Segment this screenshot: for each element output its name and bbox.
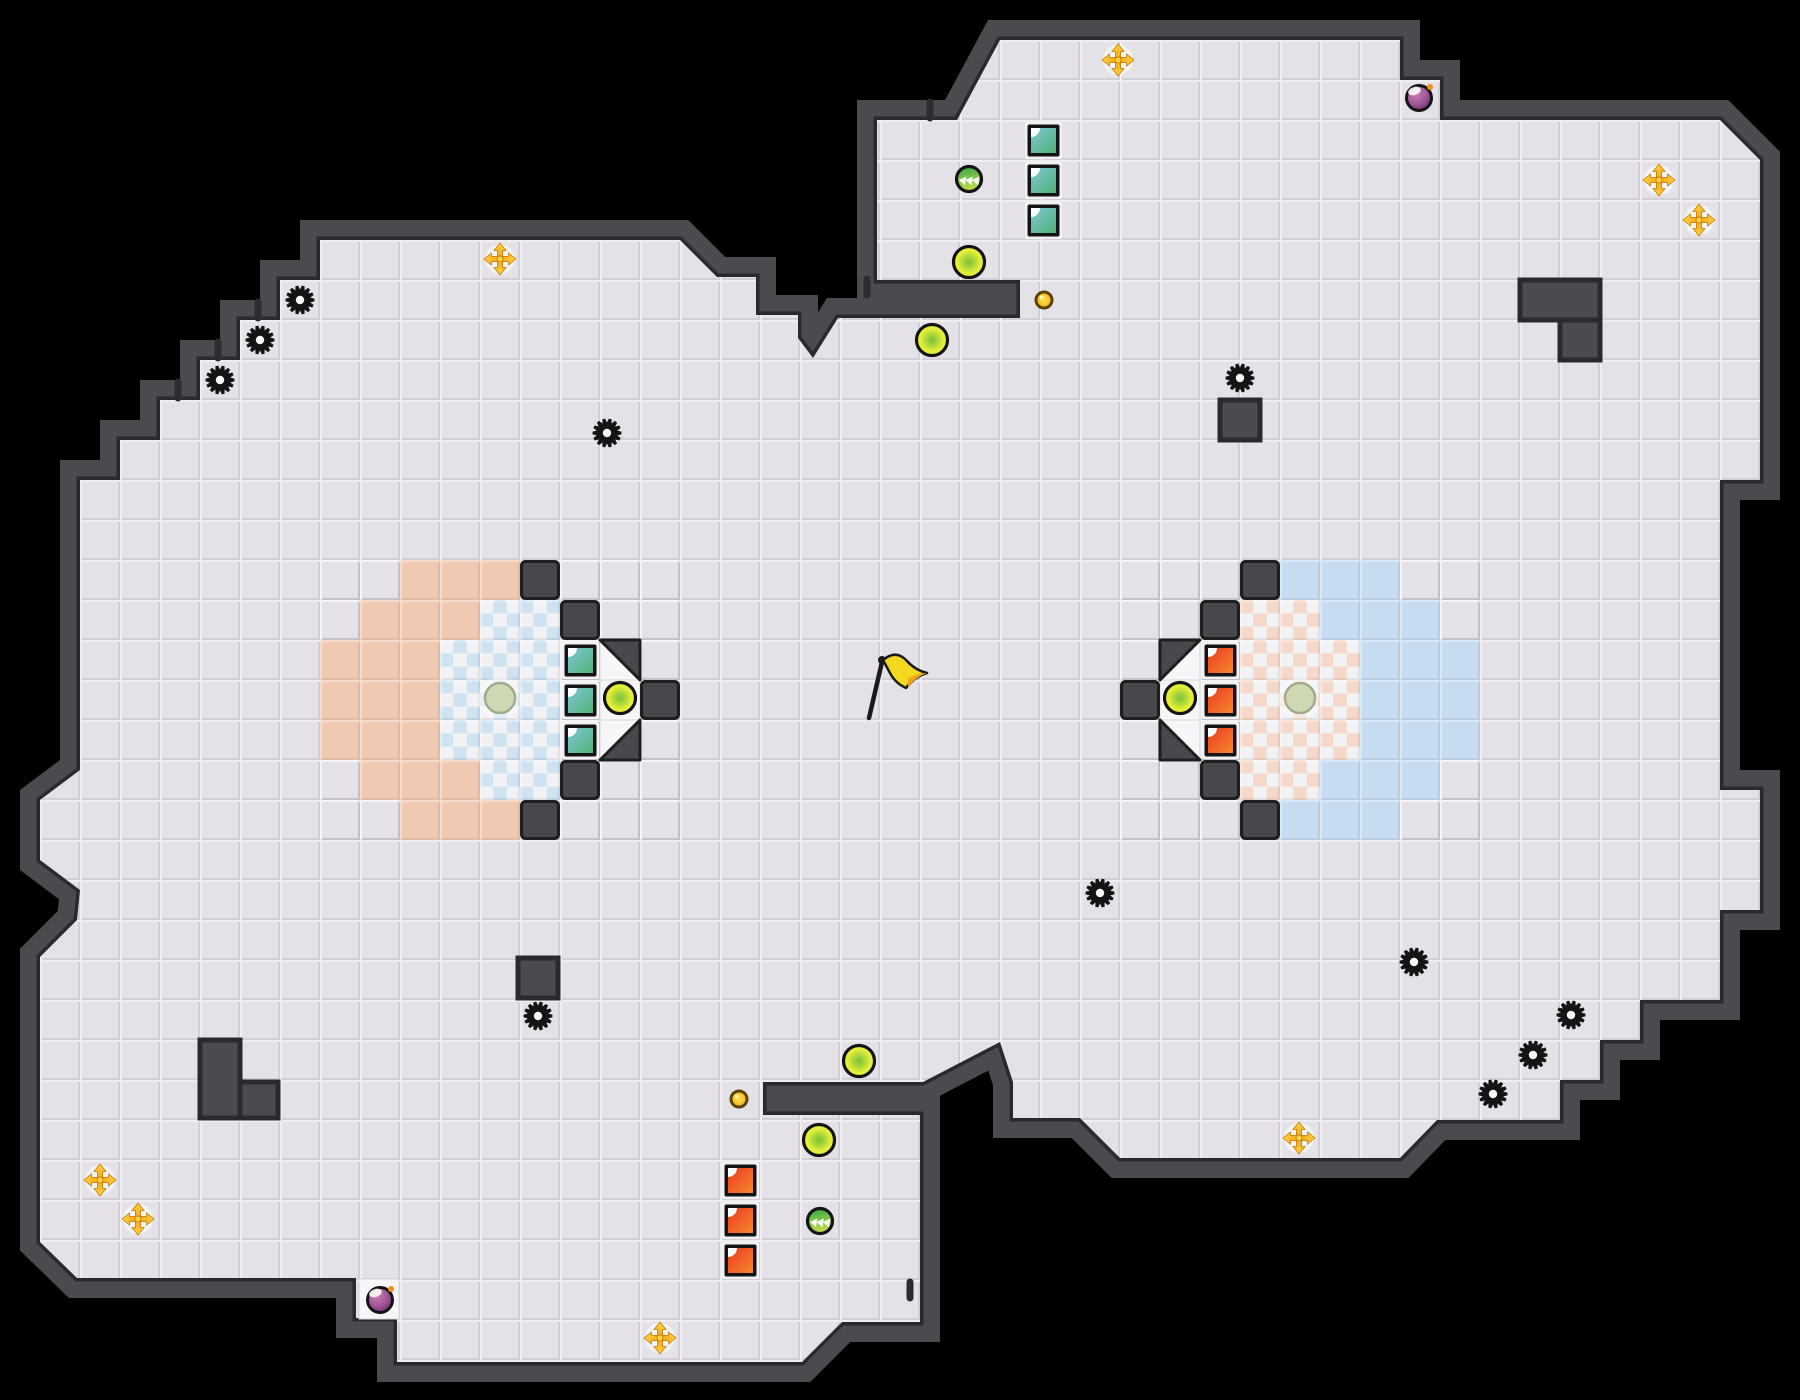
yellow-orb-icon[interactable]: [804, 1125, 835, 1156]
green-arrow-orb-icon[interactable]: [808, 1209, 833, 1234]
base-pad: [476, 674, 524, 722]
red-door-block[interactable]: [1199, 639, 1239, 679]
red-door-block[interactable]: [1199, 679, 1239, 719]
base-dark-block: [562, 762, 599, 799]
teal-door-block[interactable]: [559, 679, 599, 719]
yellow-orb-icon[interactable]: [605, 683, 636, 714]
green-arrow-orb-icon[interactable]: [957, 167, 982, 192]
door-marker-tick: [927, 99, 934, 122]
red-door-block[interactable]: [719, 1199, 759, 1239]
base-dark-block: [1242, 562, 1279, 599]
teal-door-block[interactable]: [1022, 199, 1062, 239]
door-marker-tick: [864, 276, 871, 299]
game-viewport: [0, 0, 1800, 1400]
coin-icon[interactable]: [731, 1091, 747, 1107]
yellow-orb-icon[interactable]: [954, 247, 985, 278]
red-door-block[interactable]: [719, 1239, 759, 1279]
yellow-orb-icon[interactable]: [1165, 683, 1196, 714]
base-dark-block: [1202, 762, 1239, 799]
red-door-block[interactable]: [1199, 719, 1239, 759]
wall-obstacle: [1220, 400, 1260, 440]
base-pad: [1276, 674, 1324, 722]
coin-icon[interactable]: [1036, 292, 1052, 308]
base-dark-block: [1202, 602, 1239, 639]
door-marker-tick: [175, 379, 182, 402]
base-dark-block: [1242, 802, 1279, 839]
base-dark-block: [522, 562, 559, 599]
yellow-orb-icon[interactable]: [844, 1046, 875, 1077]
wall-obstacle: [200, 1040, 240, 1118]
door-marker-tick: [907, 1279, 914, 1302]
bomb-icon[interactable]: [1407, 84, 1434, 111]
base-dark-block: [642, 682, 679, 719]
door-marker-tick: [255, 299, 262, 322]
base-dark-block: [562, 602, 599, 639]
wall-obstacle: [1520, 280, 1600, 320]
base-dark-block: [1122, 682, 1159, 719]
wall-obstacle: [240, 1082, 278, 1118]
teal-door-block[interactable]: [559, 719, 599, 759]
red-door-block[interactable]: [719, 1159, 759, 1199]
teal-door-block[interactable]: [559, 639, 599, 679]
teal-door-block[interactable]: [1022, 159, 1062, 199]
bomb-icon[interactable]: [368, 1286, 395, 1313]
door-marker-tick: [215, 339, 222, 362]
yellow-orb-icon[interactable]: [917, 325, 948, 356]
base-dark-block: [522, 802, 559, 839]
wall-obstacle: [1560, 320, 1600, 360]
game-map: [0, 0, 1800, 1400]
teal-door-block[interactable]: [1022, 119, 1062, 159]
wall-obstacle: [518, 958, 558, 998]
